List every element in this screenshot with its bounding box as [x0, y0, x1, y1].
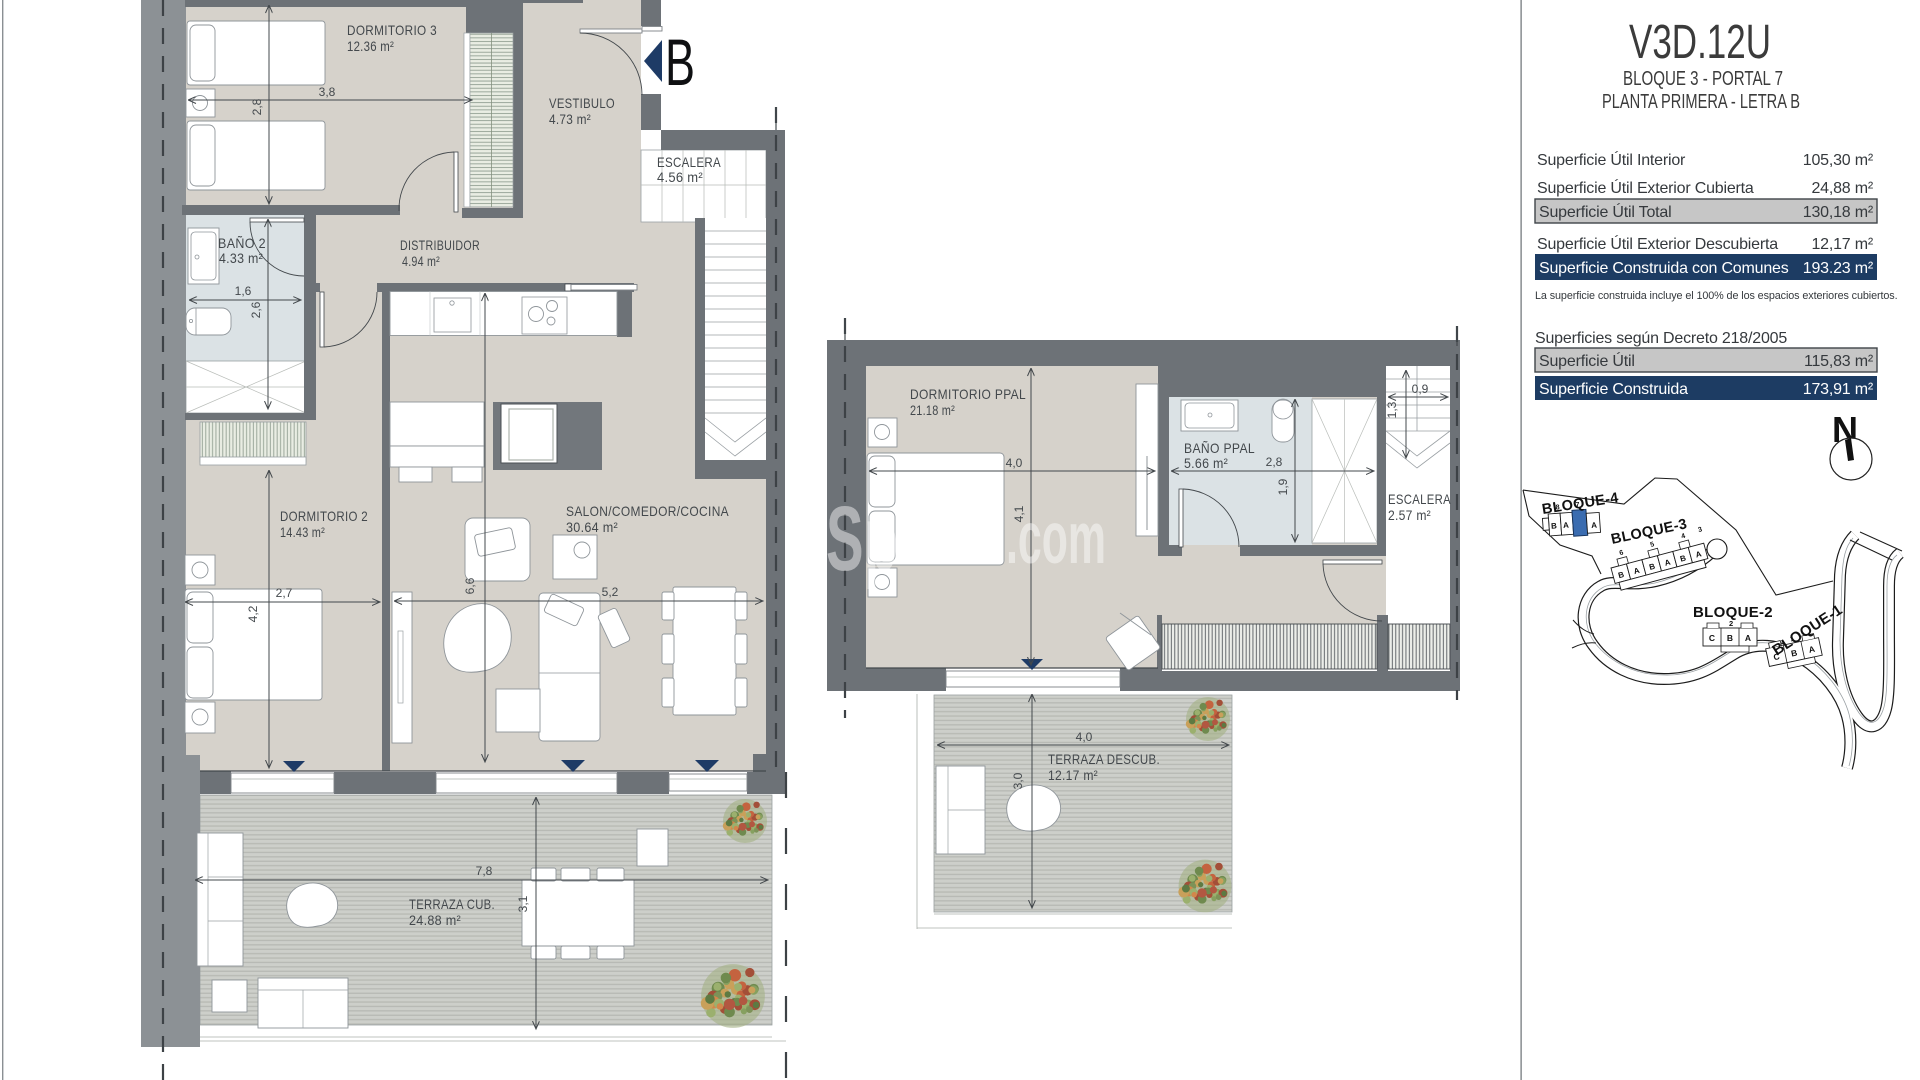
svg-text:VESTIBULO: VESTIBULO: [549, 95, 615, 111]
svg-text:173,91 m²: 173,91 m²: [1803, 381, 1874, 398]
svg-text:A: A: [1745, 633, 1751, 643]
svg-text:Superficie Construida: Superficie Construida: [1539, 381, 1688, 398]
svg-text:A: A: [1563, 521, 1570, 530]
svg-text:B: B: [1551, 521, 1558, 530]
svg-text:0,9: 0,9: [1412, 382, 1429, 396]
svg-text:130,18 m²: 130,18 m²: [1803, 204, 1874, 221]
svg-text:TERRAZA CUB.: TERRAZA CUB.: [409, 896, 495, 912]
svg-text:BAÑO 2: BAÑO 2: [218, 235, 266, 251]
svg-text:Superficie Útil Exterior Cubie: Superficie Útil Exterior Cubierta: [1537, 178, 1754, 197]
svg-text:Superficies según Decreto 218/: Superficies según Decreto 218/2005: [1535, 330, 1787, 347]
svg-text:1,6: 1,6: [235, 284, 252, 298]
svg-text:2,8: 2,8: [250, 98, 264, 115]
svg-text:2,7: 2,7: [276, 586, 293, 600]
svg-text:ESCALERA: ESCALERA: [657, 154, 721, 170]
svg-text:DORMITORIO PPAL: DORMITORIO PPAL: [910, 386, 1026, 402]
svg-text:ESCALERA: ESCALERA: [1388, 491, 1451, 507]
svg-text:A: A: [1591, 521, 1598, 530]
svg-text:La superficie construida inclu: La superficie construida incluye el 100%…: [1535, 290, 1898, 302]
svg-text:B: B: [665, 25, 695, 99]
svg-text:3,0: 3,0: [1011, 772, 1025, 789]
svg-text:30.64 m²: 30.64 m²: [566, 520, 618, 535]
svg-text:BLOQUE 3 - PORTAL 7: BLOQUE 3 - PORTAL 7: [1623, 68, 1783, 90]
svg-text:4.94 m²: 4.94 m²: [402, 254, 440, 269]
svg-text:24,88 m²: 24,88 m²: [1811, 180, 1873, 197]
svg-text:1,9: 1,9: [1276, 478, 1290, 495]
svg-text:.com: .com: [1006, 498, 1106, 579]
svg-text:2,6: 2,6: [249, 301, 263, 318]
svg-text:C: C: [1709, 633, 1715, 643]
svg-text:DORMITORIO 2: DORMITORIO 2: [280, 508, 368, 524]
svg-text:4.56 m²: 4.56 m²: [657, 170, 703, 185]
svg-text:V3D.12U: V3D.12U: [1629, 16, 1771, 69]
svg-text:TERRAZA DESCUB.: TERRAZA DESCUB.: [1048, 751, 1160, 767]
svg-text:DISTRIBUIDOR: DISTRIBUIDOR: [400, 237, 480, 253]
svg-text:12.17 m²: 12.17 m²: [1048, 768, 1098, 783]
svg-text:PLANTA PRIMERA - LETRA B: PLANTA PRIMERA - LETRA B: [1602, 91, 1800, 113]
svg-text:SALON/COMEDOR/COCINA: SALON/COMEDOR/COCINA: [566, 503, 729, 519]
svg-text:5.66 m²: 5.66 m²: [1184, 456, 1228, 471]
svg-text:Superficie Útil Interior: Superficie Útil Interior: [1537, 150, 1686, 169]
svg-text:DORMITORIO 3: DORMITORIO 3: [347, 22, 437, 38]
svg-text:4.73 m²: 4.73 m²: [549, 112, 591, 127]
svg-text:Sp: Sp: [826, 488, 898, 590]
svg-text:3,8: 3,8: [319, 85, 336, 99]
svg-text:Superficie Construida con Comu: Superficie Construida con Comunes: [1539, 260, 1789, 277]
svg-text:1,3: 1,3: [1385, 401, 1399, 418]
svg-text:21.18 m²: 21.18 m²: [910, 403, 955, 418]
svg-text:B: B: [1727, 633, 1733, 643]
svg-text:5,2: 5,2: [602, 585, 619, 599]
svg-text:4,0: 4,0: [1006, 456, 1023, 470]
svg-text:12,17 m²: 12,17 m²: [1811, 236, 1873, 253]
svg-text:105,30 m²: 105,30 m²: [1803, 152, 1874, 169]
svg-text:7,8: 7,8: [476, 864, 493, 878]
svg-text:24.88 m²: 24.88 m²: [409, 913, 461, 928]
svg-text:4,2: 4,2: [246, 605, 260, 622]
svg-text:4,0: 4,0: [1076, 730, 1093, 744]
svg-text:Superficie Útil: Superficie Útil: [1539, 351, 1635, 370]
svg-text:12.36 m²: 12.36 m²: [347, 39, 394, 54]
svg-text:Superficie Útil Exterior Descu: Superficie Útil Exterior Descubierta: [1537, 234, 1778, 253]
svg-text:2.57 m²: 2.57 m²: [1388, 508, 1431, 523]
svg-text:193.23 m²: 193.23 m²: [1803, 260, 1874, 277]
svg-text:BAÑO PPAL: BAÑO PPAL: [1184, 440, 1255, 456]
svg-text:3,1: 3,1: [516, 895, 530, 912]
svg-text:2,8: 2,8: [1266, 455, 1283, 469]
svg-text:6,6: 6,6: [463, 577, 477, 594]
svg-text:Superficie Útil Total: Superficie Útil Total: [1539, 202, 1671, 221]
svg-text:14.43 m²: 14.43 m²: [280, 525, 325, 540]
svg-text:BLOQUE-2: BLOQUE-2: [1693, 604, 1773, 621]
svg-text:4.33 m²: 4.33 m²: [219, 251, 263, 266]
svg-text:115,83 m²: 115,83 m²: [1804, 353, 1874, 370]
